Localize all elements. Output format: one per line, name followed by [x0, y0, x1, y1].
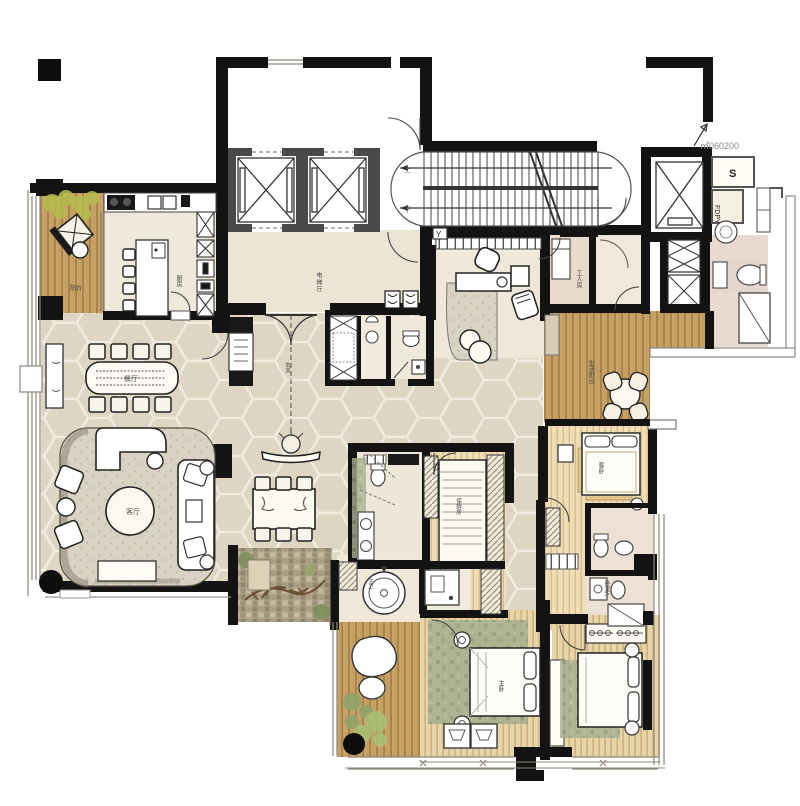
svg-text:电梯厅: 电梯厅	[315, 271, 322, 293]
svg-text:主卧: 主卧	[497, 679, 504, 693]
svg-text:上: 上	[404, 165, 411, 174]
svg-text:餐厅: 餐厅	[124, 374, 138, 383]
svg-text:工人房: 工人房	[575, 270, 582, 289]
svg-text:Y: Y	[436, 230, 442, 239]
svg-text:厨房: 厨房	[175, 275, 182, 288]
svg-text:生活阳台: 生活阳台	[587, 359, 594, 385]
svg-text:客厅: 客厅	[126, 507, 140, 516]
svg-text:保姆房: 保姆房	[455, 497, 462, 516]
svg-text:㎡060200: ㎡060200	[700, 141, 739, 151]
svg-text:卧室A: 卧室A	[603, 579, 610, 596]
svg-text:玄关: 玄关	[284, 361, 291, 375]
svg-text:客卧: 客卧	[597, 461, 604, 475]
svg-text:主卫: 主卫	[367, 577, 374, 590]
svg-text:下: 下	[404, 206, 411, 214]
svg-text:S: S	[729, 168, 736, 180]
svg-text:阳台: 阳台	[70, 284, 82, 292]
svg-text:FDPY: FDPY	[713, 205, 720, 224]
